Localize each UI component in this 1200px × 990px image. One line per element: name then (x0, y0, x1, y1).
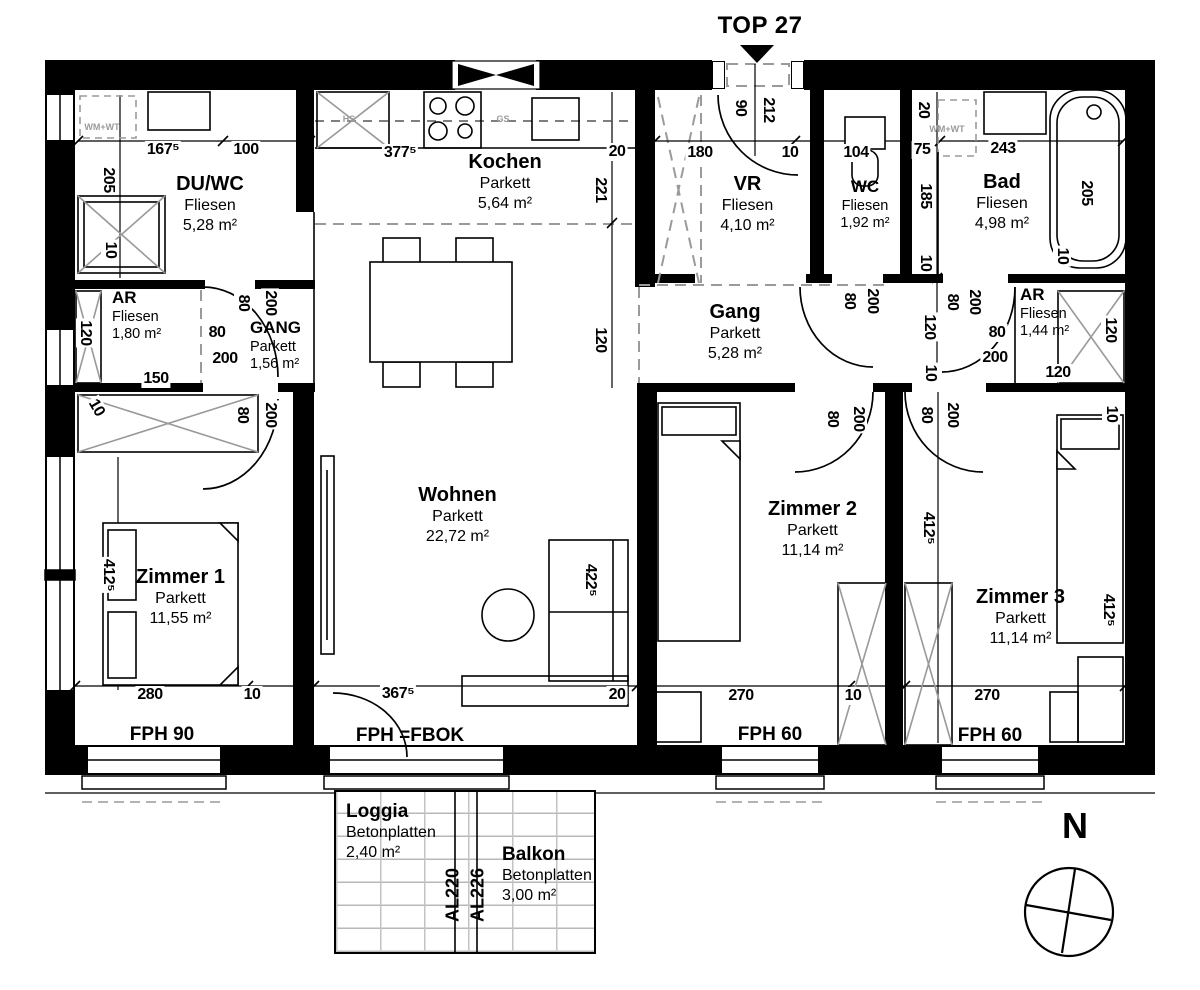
dimension-label: 80 (840, 291, 858, 312)
room-label-zimmer2: Zimmer 2 Parkett 11,14 m² (750, 497, 875, 560)
dimension-label: 377⁵ (382, 144, 418, 162)
room-label-zimmer1: Zimmer 1 Parkett 11,55 m² (118, 565, 243, 628)
appliance-label: HS (343, 114, 356, 124)
room-label-zimmer3: Zimmer 3 Parkett 11,14 m² (958, 585, 1083, 648)
room-label-gang: Gang Parkett 5,28 m² (675, 300, 795, 363)
dimension-label: 10 (242, 686, 263, 704)
dimension-label: 200 (210, 350, 239, 368)
room-label-balkon: Balkon Betonplatten 3,00 m² (502, 843, 637, 905)
bed-zimmer2 (658, 403, 740, 641)
dimension-label: 185 (916, 181, 934, 210)
dining-table (370, 238, 512, 387)
dimension-label: 367⁵ (380, 685, 416, 703)
room-label-wohnen: Wohnen Parkett 22,72 m² (395, 483, 520, 546)
dimension-label: 100 (231, 141, 260, 159)
dimension-label: 104 (841, 144, 870, 162)
appliance-label: WM+WT (84, 122, 119, 132)
dimension-label: 80 (233, 405, 251, 426)
desk-zimmer3-a (1078, 657, 1123, 742)
dimension-label: 200 (261, 288, 279, 317)
window-height-label: FPH 60 (958, 725, 1022, 747)
desk-zimmer2 (655, 692, 701, 742)
balcony-rail-label: AL226 (468, 868, 489, 922)
compass: N (1015, 805, 1135, 965)
dimension-label: 150 (141, 370, 170, 388)
door-entrance (718, 95, 798, 175)
room-label-duwc: DU/WC Fliesen 5,28 m² (150, 172, 270, 235)
room-label-vr: VR Fliesen 4,10 m² (700, 172, 795, 235)
appliance-label: GS (496, 114, 509, 124)
dimension-label: 212 (759, 95, 777, 124)
dimension-label: 80 (917, 405, 935, 426)
dimension-label: 120 (920, 312, 938, 341)
dimension-label: 422⁵ (581, 562, 599, 598)
dimension-label: 412⁵ (99, 557, 117, 593)
dimension-label: 20 (607, 143, 628, 161)
compass-north-label: N (1015, 805, 1135, 847)
dimension-label: 221 (591, 175, 609, 204)
bowtie-window-icon (452, 61, 540, 89)
window-height-label: FPH 90 (130, 724, 194, 746)
sink-icon (532, 98, 579, 140)
dimension-label: 200 (943, 400, 961, 429)
dimension-label: 10 (843, 687, 864, 705)
dimension-label: 90 (731, 98, 749, 119)
dimension-label: 270 (726, 687, 755, 705)
dimension-label: 75 (912, 141, 933, 159)
dimension-label: 10 (1053, 246, 1071, 267)
dimension-label: 80 (234, 293, 252, 314)
dimension-label: 20 (914, 100, 932, 121)
dimension-label: 280 (135, 686, 164, 704)
dimension-label: 200 (980, 349, 1009, 367)
dimension-label: 167⁵ (145, 141, 181, 159)
dimension-label: 10 (921, 363, 939, 384)
dimension-label: 205 (99, 165, 117, 194)
balcony-rail-label: AL220 (443, 868, 464, 922)
room-label-loggia: Loggia Betonplatten 2,40 m² (346, 800, 476, 862)
dimension-label: 120 (1101, 315, 1119, 344)
dimension-label: 270 (972, 687, 1001, 705)
dimension-label: 80 (823, 409, 841, 430)
dimension-label: 200 (863, 286, 881, 315)
dimension-label: 243 (988, 140, 1017, 158)
dimension-label: 20 (607, 686, 628, 704)
dimension-label: 10 (1102, 404, 1120, 425)
dimension-label: 200 (849, 404, 867, 433)
dimension-label: 10 (101, 240, 119, 261)
washbasin-icon (984, 92, 1046, 134)
kitchen-counter (315, 92, 635, 148)
window-height-label: FPH =FBOK (356, 725, 464, 747)
room-label-ar-left: AR Fliesen 1,80 m² (112, 288, 204, 344)
dimension-label: 10 (916, 253, 934, 274)
room-label-kochen: Kochen Parkett 5,64 m² (445, 150, 565, 213)
dimension-label: 120 (591, 325, 609, 354)
dimension-label: 412⁵ (919, 510, 937, 546)
window-height-label: FPH 60 (738, 724, 802, 746)
room-label-ar-right: AR Fliesen 1,44 m² (1020, 285, 1105, 341)
dimension-label: 10 (780, 144, 801, 162)
dimension-label: 80 (987, 324, 1008, 342)
washbasin-icon (148, 92, 210, 130)
dimension-label: 120 (1043, 364, 1072, 382)
appliance-label: WM+WT (929, 124, 964, 134)
dimension-label: 200 (261, 400, 279, 429)
round-table-icon (482, 589, 534, 641)
faucet-icon (1087, 105, 1101, 119)
room-label-wc: WC Fliesen 1,92 m² (820, 177, 910, 233)
dimension-label: 120 (76, 318, 94, 347)
dimension-label: 180 (685, 144, 714, 162)
floor-plan: TOP 27 (0, 0, 1200, 990)
room-label-gang-klein: GANG Parkett 1,56 m² (250, 318, 330, 374)
dimension-label: 200 (965, 287, 983, 316)
dimension-label: 205 (1077, 178, 1095, 207)
desk-zimmer3-b (1050, 692, 1078, 742)
room-label-bad: Bad Fliesen 4,98 m² (942, 170, 1062, 233)
dimension-label: 412⁵ (1099, 592, 1117, 628)
dimension-label: 80 (943, 292, 961, 313)
dimension-label: 80 (207, 324, 228, 342)
